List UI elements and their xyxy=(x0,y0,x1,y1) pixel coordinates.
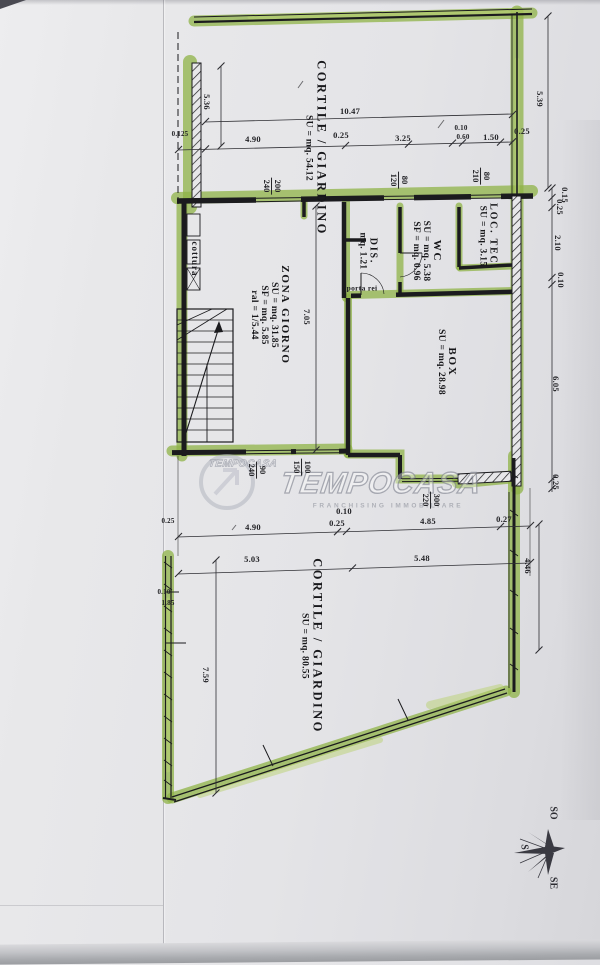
dim-label: 2.10 xyxy=(553,235,563,251)
window-size-mark: 100150 xyxy=(292,459,312,476)
compass-rose-icon xyxy=(514,829,565,878)
room-label-wc: WC SU = mq. 5.38 SF = mq. 0.96 xyxy=(411,221,443,282)
window-size-mark: 80120 xyxy=(389,172,409,189)
garage-door-size-mark: 300220 xyxy=(421,492,441,509)
dim-label: 0.10 xyxy=(157,588,170,596)
dim-label: 5.03 xyxy=(244,554,260,564)
dim-label: 5.39 xyxy=(535,91,545,107)
dim-label: 0.25 xyxy=(551,474,561,490)
dim-label: 7.59 xyxy=(201,667,211,683)
dim-label: 5.48 xyxy=(414,553,430,563)
window-size-mark: 80210 xyxy=(471,168,491,185)
scanned-floor-plan-page: { "plan": { "rooms": { "cortile_top": {"… xyxy=(0,0,600,960)
room-label-box: BOX SU = mq. 28.98 xyxy=(436,329,458,395)
dim-label: 1.50 xyxy=(483,132,499,142)
window-size-mark: 90240 xyxy=(247,462,267,479)
dim-label: 0.10 xyxy=(336,506,352,516)
photo-bottom-edge xyxy=(0,939,600,964)
dim-label: 5.36 xyxy=(202,94,212,110)
annotation-porta-rei: porta rei xyxy=(347,284,378,293)
compass-label-so: SO xyxy=(548,806,559,819)
annotation-cottura: cottura xyxy=(190,242,200,277)
dim-label: 7.05 xyxy=(302,309,312,325)
room-label-cortile-giardino-bottom: CORTILE / GIARDINO SU = mq. 80.55 xyxy=(300,558,325,733)
dimension-lines xyxy=(175,13,556,797)
dim-label: 0.27 xyxy=(496,514,512,524)
room-label-loc-tec: LOC. TEC. SU = mq. 3.15 xyxy=(478,203,499,269)
dim-label: 0.25 xyxy=(161,517,174,525)
dim-label: 4.85 xyxy=(420,516,436,526)
dim-label: 6.05 xyxy=(551,376,561,392)
dim-label: 0.10 xyxy=(556,272,566,288)
dim-label: 3.25 xyxy=(395,133,411,143)
dim-label: 0.10 xyxy=(454,124,467,132)
window-size-mark: 200240 xyxy=(262,178,282,195)
room-label-cortile-giardino-top: CORTILE / GIARDINO SU = mq. 54.12 xyxy=(304,60,329,235)
dim-label: 4.90 xyxy=(245,134,261,144)
room-label-zona-giorno: ZONA GIORNO SU = mq. 31.85 SF = mq. 5.85… xyxy=(249,265,291,365)
dim-label: 0.125 xyxy=(172,130,189,138)
dim-label: 0.25 xyxy=(514,126,530,136)
dim-label: 0.60 xyxy=(456,133,469,141)
dim-label: 10.47 xyxy=(340,106,360,116)
dim-label: 0.25 xyxy=(333,130,349,140)
walls xyxy=(163,9,533,802)
dim-label: 0.25 xyxy=(329,518,345,528)
dim-label: 4.90 xyxy=(245,522,261,532)
compass-label-se: SE xyxy=(548,877,559,889)
room-label-dis: DIS. mq. 1.21 xyxy=(358,233,379,270)
dim-label: 4.46 xyxy=(523,558,533,574)
dim-label: 1.85 xyxy=(161,599,174,607)
dim-label: 0.25 xyxy=(555,199,565,215)
compass-label-s: S xyxy=(519,844,530,850)
